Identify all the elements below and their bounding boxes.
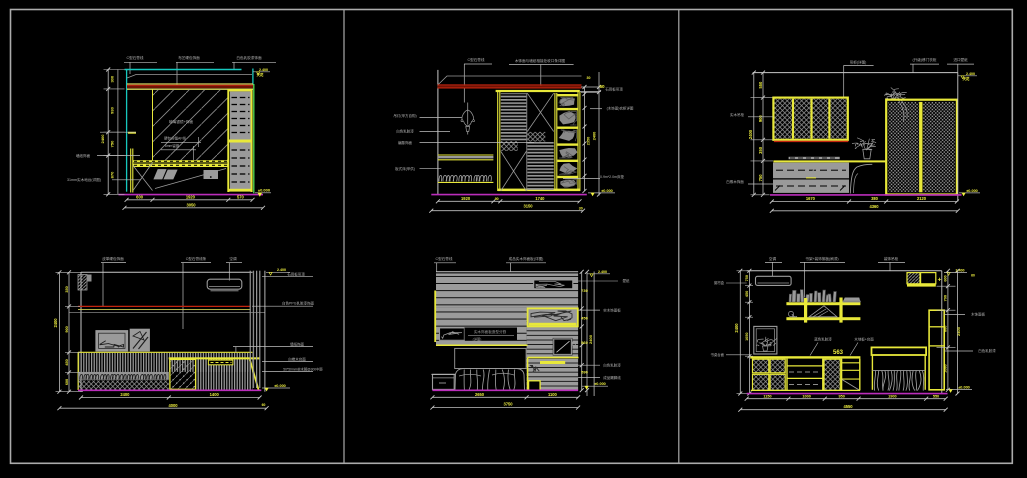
svg-text:玻璃银镜+饰面: 玻璃银镜+饰面 [169, 119, 194, 124]
svg-text:900: 900 [758, 115, 763, 123]
svg-text:窗帘盒: 窗帘盒 [714, 280, 725, 285]
svg-text:+: + [938, 277, 942, 284]
svg-text:壁纸: 壁纸 [623, 278, 630, 283]
svg-text:(升级)移门衣柜: (升级)移门衣柜 [913, 57, 937, 62]
svg-text:750: 750 [110, 140, 115, 147]
svg-text:(详图): (详图) [473, 336, 482, 341]
svg-text:C型石膏线: C型石膏线 [468, 57, 485, 62]
svg-text:450: 450 [581, 316, 588, 321]
svg-text:墙纸饰面: 墙纸饰面 [76, 153, 91, 158]
svg-text:30: 30 [579, 206, 583, 210]
svg-text:实木饰面板: 实木饰面板 [603, 307, 621, 312]
svg-text:4360: 4360 [869, 204, 879, 209]
svg-text:550: 550 [758, 81, 763, 89]
svg-text:石膏板吊顶: 石膏板吊顶 [605, 86, 623, 91]
svg-text:2350: 2350 [587, 137, 591, 145]
svg-text:书架+装饰搁板(刷漆): 书架+装饰搁板(刷漆) [805, 256, 838, 261]
svg-text:0.9m*2.0m床垫: 0.9m*2.0m床垫 [600, 174, 624, 179]
svg-text:2400: 2400 [748, 129, 753, 139]
svg-text:进口壁纸: 进口壁纸 [953, 57, 968, 62]
svg-text:2400: 2400 [734, 323, 739, 333]
svg-text:50*50mm实木脚@300中距: 50*50mm实木脚@300中距 [283, 366, 323, 371]
svg-text:实木吊柜: 实木吊柜 [730, 112, 744, 117]
svg-text:2.400: 2.400 [598, 270, 607, 274]
svg-text:6mm留缝: 6mm留缝 [165, 143, 180, 148]
svg-text:300: 300 [110, 75, 115, 82]
svg-text:木地板+台面: 木地板+台面 [854, 337, 874, 342]
svg-text:白色PPG乳胶漆饰面: 白色PPG乳胶漆饰面 [282, 301, 314, 306]
svg-text:成品实木饰面板(详图): 成品实木饰面板(详图) [509, 256, 544, 261]
svg-text:900: 900 [65, 326, 69, 332]
svg-text:书桌台面: 书桌台面 [710, 352, 724, 357]
svg-text:60: 60 [599, 84, 605, 89]
svg-text:成品踢脚线: 成品踢脚线 [603, 375, 621, 380]
svg-text:350: 350 [758, 146, 763, 154]
svg-text:±0.000: ±0.000 [958, 386, 970, 390]
svg-text:870: 870 [110, 171, 115, 178]
svg-text:白色乳胶漆: 白色乳胶漆 [603, 362, 621, 367]
svg-text:1920: 1920 [186, 195, 196, 200]
svg-text:1400: 1400 [210, 392, 220, 397]
svg-text:装饰吊柜: 装饰吊柜 [884, 256, 899, 261]
svg-text:空调: 空调 [769, 256, 777, 261]
svg-text:(木饰面)衣柜详图: (木饰面)衣柜详图 [607, 106, 634, 111]
svg-text:木饰面与墙纸相接处收口条详图: 木饰面与墙纸相接处收口条详图 [515, 58, 566, 63]
svg-text:板式床(甲供): 板式床(甲供) [395, 166, 415, 171]
svg-text:60: 60 [971, 274, 975, 278]
svg-text:860: 860 [944, 326, 948, 332]
svg-text:天花: 天花 [963, 76, 970, 81]
svg-text:C型石膏线: C型石膏线 [436, 256, 453, 261]
svg-text:1080: 1080 [944, 364, 948, 372]
svg-text:590: 590 [581, 370, 588, 375]
svg-text:吊灯(甲方自购): 吊灯(甲方自购) [393, 113, 416, 118]
svg-text:2400: 2400 [120, 392, 130, 397]
svg-text:950: 950 [839, 394, 845, 398]
svg-text:730: 730 [581, 288, 588, 293]
svg-text:2400: 2400 [100, 134, 105, 144]
svg-text:2400: 2400 [53, 318, 58, 328]
svg-text:60: 60 [262, 403, 266, 407]
svg-text:700: 700 [944, 295, 948, 301]
svg-text:布艺硬包饰面: 布艺硬包饰面 [178, 55, 200, 60]
svg-text:编藤饰面: 编藤饰面 [398, 140, 412, 145]
svg-text:600: 600 [136, 195, 144, 200]
svg-text:±0.000: ±0.000 [966, 189, 978, 193]
svg-text:4550: 4550 [843, 404, 853, 409]
svg-text:吊柜(详图): 吊柜(详图) [850, 59, 867, 64]
svg-text:墙纸饰面: 墙纸饰面 [290, 341, 304, 346]
svg-text:2.400: 2.400 [956, 269, 965, 273]
svg-text:350: 350 [65, 286, 69, 292]
svg-text:550: 550 [933, 394, 939, 398]
svg-text:白橡木台面: 白橡木台面 [288, 356, 306, 361]
svg-text:木饰面板: 木饰面板 [971, 312, 985, 317]
svg-text:750: 750 [758, 174, 763, 182]
svg-text:天花: 天花 [257, 72, 264, 77]
svg-text:1920: 1920 [461, 196, 471, 201]
svg-text:570: 570 [237, 195, 245, 200]
svg-text:1150: 1150 [763, 394, 771, 398]
svg-text:白色乳胶漆: 白色乳胶漆 [978, 348, 996, 353]
svg-text:2400: 2400 [593, 132, 597, 140]
svg-text:1000: 1000 [802, 394, 810, 398]
svg-text:1100: 1100 [548, 392, 558, 397]
svg-text:实木饰面板造型分割: 实木饰面板造型分割 [474, 329, 507, 334]
svg-text:600: 600 [944, 275, 948, 281]
svg-text:3750: 3750 [503, 402, 513, 407]
svg-text:450: 450 [745, 291, 749, 297]
svg-text:2.400: 2.400 [966, 72, 975, 76]
svg-text:蓝色乳胶漆: 蓝色乳胶漆 [814, 337, 832, 342]
svg-text:±0.000: ±0.000 [601, 189, 613, 193]
svg-text:450: 450 [65, 359, 69, 365]
svg-text:930: 930 [110, 106, 115, 113]
svg-text:1740: 1740 [535, 196, 545, 201]
svg-text:硬包分缝AF线: 硬包分缝AF线 [164, 135, 186, 140]
svg-text:2400: 2400 [956, 326, 961, 336]
svg-text:白色乳胶漆: 白色乳胶漆 [396, 129, 414, 134]
svg-text:750: 750 [745, 275, 749, 281]
svg-text:皮革硬包饰面: 皮革硬包饰面 [102, 256, 124, 261]
svg-text:3050: 3050 [186, 203, 196, 208]
svg-text:2.400: 2.400 [277, 268, 286, 272]
svg-text:563: 563 [833, 350, 844, 356]
svg-text:白橡木饰面: 白橡木饰面 [726, 179, 744, 184]
svg-text:380: 380 [871, 196, 879, 201]
svg-text:C型石膏线条: C型石膏线条 [186, 256, 207, 261]
svg-text:白色乳胶漆饰面: 白色乳胶漆饰面 [236, 55, 262, 60]
svg-text:2120: 2120 [917, 196, 927, 201]
svg-text:3150: 3150 [523, 203, 533, 208]
svg-text:2400: 2400 [588, 334, 593, 344]
svg-text:31mm实木地台(详图): 31mm实木地台(详图) [67, 177, 101, 182]
svg-text:4000: 4000 [168, 403, 178, 408]
svg-text:1670: 1670 [806, 196, 816, 201]
svg-text:±0.000: ±0.000 [258, 188, 271, 193]
svg-text:C型石膏线: C型石膏线 [127, 55, 144, 60]
svg-text:±0.000: ±0.000 [594, 382, 606, 386]
svg-text:90: 90 [495, 197, 499, 201]
svg-text:30: 30 [587, 76, 591, 80]
svg-text:1900: 1900 [888, 394, 896, 398]
svg-text:空调: 空调 [229, 256, 237, 261]
svg-text:±0.000: ±0.000 [274, 384, 286, 388]
svg-text:2650: 2650 [475, 392, 485, 397]
svg-text:2.400: 2.400 [259, 68, 268, 72]
svg-text:600: 600 [65, 379, 69, 385]
svg-text:1050: 1050 [745, 332, 749, 340]
